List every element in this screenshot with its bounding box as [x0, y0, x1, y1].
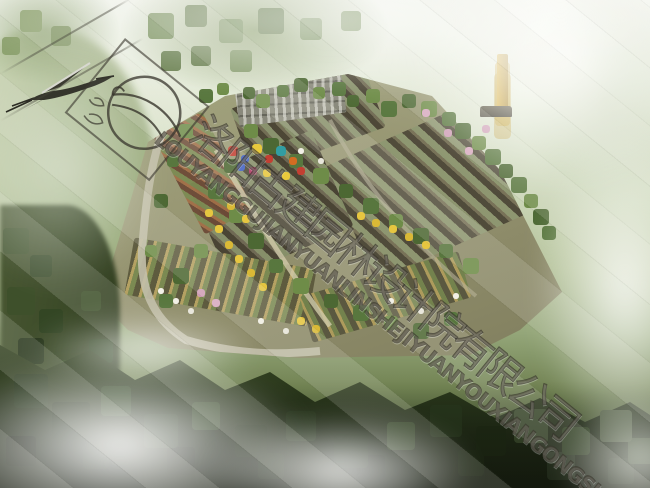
rendering-canvas: 洛阳古建园林设计院有限公司 LOUYANGGUJIANYUANLINSHEJIY… — [0, 0, 650, 488]
mist-wisp-left — [30, 318, 260, 382]
